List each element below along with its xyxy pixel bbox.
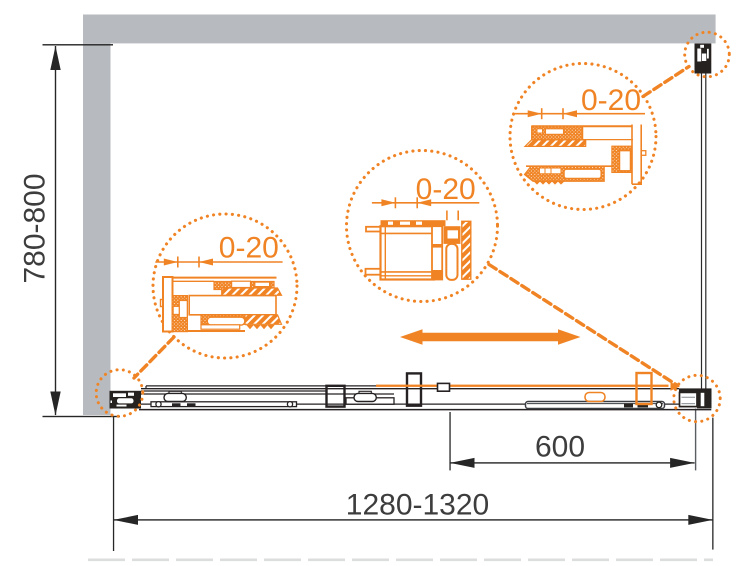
svg-text:1280-1320: 1280-1320: [346, 489, 489, 522]
svg-text:600: 600: [535, 431, 585, 464]
svg-text:780-800: 780-800: [18, 173, 51, 283]
svg-text:0-20: 0-20: [219, 232, 279, 265]
svg-text:0-20: 0-20: [581, 84, 641, 117]
